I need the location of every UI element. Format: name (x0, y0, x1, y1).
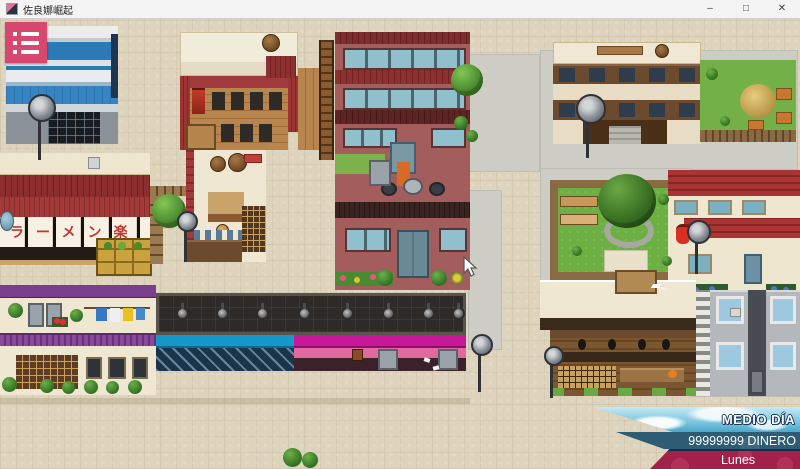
entrance-door (750, 370, 764, 394)
street-lamp-pole (478, 350, 481, 392)
dark-band (335, 110, 470, 124)
spotlight-icon (298, 307, 311, 320)
stove-row (212, 92, 286, 110)
game-window: 佐良娜崛起 – □ ✕ (0, 0, 800, 469)
potted-plant (62, 381, 75, 394)
potted-plant (40, 379, 54, 393)
potted-plant (70, 309, 83, 322)
title-bar: 佐良娜崛起 – □ ✕ (0, 0, 800, 19)
upper-wall (0, 153, 150, 175)
red-roof-section (266, 56, 296, 78)
wood-deck (298, 68, 320, 150)
bush (283, 448, 302, 467)
garden-courtyard (550, 180, 680, 280)
roof-bench (597, 46, 643, 55)
window-teal (742, 200, 766, 215)
bush (658, 194, 669, 205)
bench (560, 214, 598, 225)
wall-red-right (288, 76, 298, 132)
balcony-railing (0, 333, 156, 346)
wall-base (540, 318, 696, 330)
blue-double-door (397, 230, 429, 278)
street-lamp (544, 346, 564, 366)
street-lamp (576, 94, 606, 124)
menu-list-icon (21, 41, 39, 45)
window-blue (716, 342, 744, 370)
roof-band (335, 32, 470, 44)
lattice (558, 366, 616, 388)
hud-time-banner: MEDIO DÍA (588, 407, 800, 432)
menu-button[interactable] (5, 22, 47, 63)
rib-band (335, 70, 470, 84)
potted-plant (377, 270, 393, 286)
window-title: 佐良娜崛起 (23, 2, 73, 17)
bush (302, 452, 318, 468)
spotlight-icon (341, 307, 354, 320)
window-dark (108, 357, 126, 379)
window-row (559, 68, 695, 82)
garden-hay (700, 60, 796, 142)
spotlight-icon (176, 307, 189, 320)
street-lamp-pole (38, 116, 41, 160)
game-map[interactable]: ラーメン楽 (0, 18, 800, 469)
building-modern-apartment (696, 290, 800, 396)
oval-window (608, 339, 616, 350)
grass-tufts (550, 388, 696, 396)
glass-front (156, 348, 294, 371)
minimize-icon[interactable]: – (692, 0, 728, 18)
window-blue (770, 342, 796, 370)
potted-plant (8, 303, 23, 318)
barrel (210, 156, 226, 172)
small-sign (352, 349, 363, 361)
fence (700, 130, 796, 142)
counter (208, 192, 244, 222)
window-dark (132, 357, 148, 379)
bush (662, 256, 672, 266)
app-icon (6, 3, 18, 15)
building-shopping-strip (156, 293, 466, 371)
potted-plant (431, 270, 447, 286)
potted-plant (2, 377, 17, 392)
ladder (319, 40, 334, 160)
hud-day-label: Lunes (721, 453, 755, 467)
menu-list-icon (21, 50, 39, 54)
spotlight-icon (216, 307, 229, 320)
building-izakaya (550, 330, 696, 396)
window-teal (708, 200, 732, 215)
laundry-yellow (123, 308, 133, 321)
laundry-blue (136, 308, 145, 320)
building-market (186, 150, 266, 262)
stone-path (609, 126, 641, 144)
round-table (403, 178, 423, 195)
hud-day-banner: Lunes (650, 449, 800, 469)
dark-counter (186, 240, 242, 262)
window-dark (86, 357, 102, 379)
window-row (343, 88, 466, 110)
window-teal (674, 200, 698, 215)
hud-money-banner: 99999999 DINERO (600, 432, 800, 449)
close-icon[interactable]: ✕ (764, 0, 800, 18)
red-bench (244, 154, 262, 163)
blue-panel-ribs (6, 86, 111, 104)
window-row (431, 128, 466, 148)
haystack (740, 84, 776, 118)
building-purple-house (0, 285, 156, 395)
barrel (262, 34, 280, 52)
flower-box-red (52, 317, 68, 327)
purple-roof-band (0, 285, 156, 297)
balcony (335, 176, 470, 202)
store-door (378, 349, 398, 370)
ac-unit (730, 308, 741, 317)
blue-door (744, 254, 762, 284)
street-lamp (471, 334, 493, 356)
dark-roof-band (335, 202, 470, 218)
bush (706, 68, 718, 80)
top-band (550, 330, 696, 338)
mouse-cursor-icon (462, 256, 478, 283)
wood-bench (615, 270, 657, 294)
window-row (343, 128, 397, 148)
building-kitchen (180, 32, 320, 150)
shop-window-grid (48, 112, 100, 144)
spotlight-icon (452, 307, 465, 320)
balcony-door (369, 160, 391, 186)
oval-window (662, 339, 670, 350)
round-sign (0, 211, 14, 231)
bird-icon (659, 287, 667, 290)
bench-orange (776, 88, 792, 100)
bush (720, 116, 730, 126)
bench-orange (748, 120, 764, 130)
hud-money-label: 99999999 DINERO (688, 434, 796, 448)
bench-orange (776, 112, 792, 124)
window-row (343, 48, 466, 70)
oval-window (638, 339, 646, 350)
sand-patch (604, 250, 648, 272)
street-lamp (687, 220, 711, 244)
laundry-white (110, 308, 120, 322)
produce-crates (96, 238, 152, 276)
awning-edge (111, 34, 118, 98)
dark-band (550, 352, 696, 362)
potted-plant (84, 380, 98, 394)
gray-door (28, 303, 44, 327)
spotlight-icon (256, 307, 269, 320)
red-banner (192, 90, 205, 114)
window-row (345, 228, 391, 252)
window-teal (688, 254, 712, 274)
pot (655, 44, 669, 58)
dark-roof (156, 293, 466, 335)
sign-band-cyan (156, 335, 294, 348)
window-blue (770, 296, 796, 324)
road-line (0, 398, 470, 404)
street-lamp (28, 94, 56, 122)
laundry-blue (96, 308, 107, 321)
tree (451, 64, 483, 96)
red-roof (668, 170, 800, 196)
street-lamp (177, 211, 198, 232)
maximize-icon[interactable]: □ (728, 0, 764, 18)
potted-plant (106, 381, 119, 394)
menu-list-icon (21, 32, 39, 36)
spotlight-icon (422, 307, 435, 320)
building-inn (553, 42, 701, 144)
store-door (438, 349, 458, 370)
bush (466, 130, 478, 142)
bench (560, 196, 598, 207)
sign-band-magenta (294, 335, 466, 348)
street-lamp-pole (586, 118, 589, 158)
bush (572, 246, 582, 256)
roof-band (0, 175, 150, 197)
item-box (88, 157, 100, 169)
bush (454, 116, 468, 130)
garden-tree (598, 174, 656, 228)
siding-red (0, 197, 150, 217)
building-apartment-red (335, 32, 470, 290)
wood-counter (186, 124, 216, 150)
lattice-wall (242, 206, 266, 252)
potted-plant (128, 380, 142, 394)
window-row (439, 228, 467, 252)
pattern-band (194, 230, 242, 240)
stairs (696, 290, 710, 396)
hud-time-label: MEDIO DÍA (722, 412, 795, 427)
round-table (429, 182, 445, 196)
food-item (668, 370, 677, 378)
spotlight-icon (382, 307, 395, 320)
oval-window (578, 339, 586, 350)
